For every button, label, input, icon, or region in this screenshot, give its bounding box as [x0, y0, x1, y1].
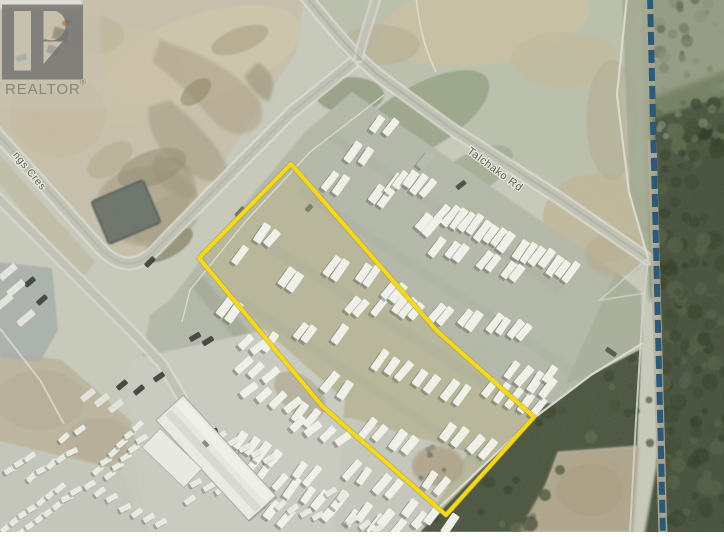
svg-text:®: ® [80, 78, 86, 87]
svg-text:REALTOR: REALTOR [5, 81, 81, 98]
